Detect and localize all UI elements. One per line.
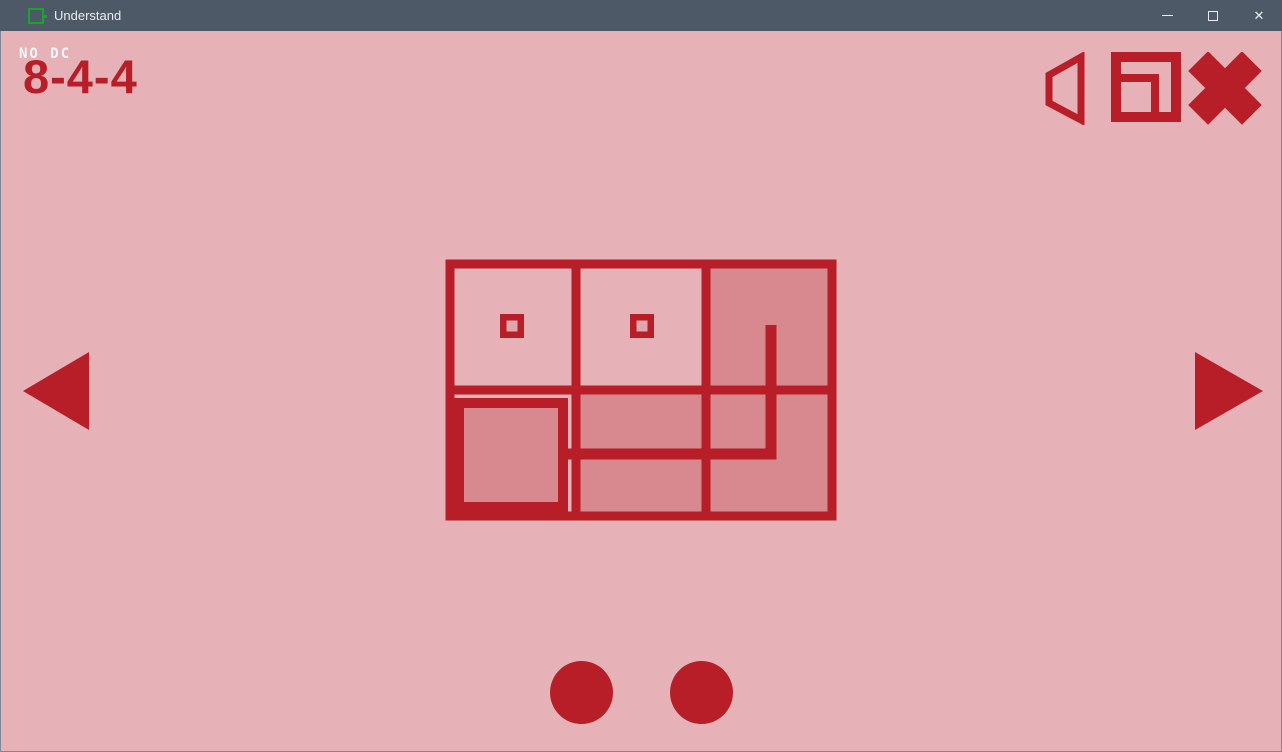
clear-button[interactable] xyxy=(1185,52,1265,126)
arrow-left-icon xyxy=(15,345,99,437)
sound-button[interactable] xyxy=(1041,52,1089,125)
dot-indicator xyxy=(670,661,733,724)
dot-indicator xyxy=(550,661,613,724)
app-icon xyxy=(28,8,44,24)
line-count-dots xyxy=(550,661,733,724)
close-icon: ✕ xyxy=(1254,9,1265,22)
prev-level-button[interactable] xyxy=(15,345,99,437)
x-cross-icon xyxy=(1185,52,1265,126)
game-area: NO DC 8-4-4 xyxy=(1,31,1281,751)
puzzle-board[interactable] xyxy=(441,255,841,525)
speaker-icon xyxy=(1041,52,1089,125)
titlebar[interactable]: Understand ✕ xyxy=(0,0,1282,31)
minimize-button[interactable] xyxy=(1144,0,1190,31)
window-title: Understand xyxy=(54,8,1144,23)
window-controls: ✕ xyxy=(1144,0,1282,31)
maximize-icon xyxy=(1208,11,1218,21)
level-title: 8-4-4 xyxy=(23,53,138,100)
next-level-button[interactable] xyxy=(1187,345,1271,437)
window-icon xyxy=(1107,50,1185,128)
app-window: Understand ✕ NO DC 8-4-4 xyxy=(0,0,1282,752)
arrow-right-icon xyxy=(1187,345,1271,437)
minimize-icon xyxy=(1162,15,1173,16)
maximize-button[interactable] xyxy=(1190,0,1236,31)
close-button[interactable]: ✕ xyxy=(1236,0,1282,31)
app-icon-tick xyxy=(42,15,47,18)
window-button[interactable] xyxy=(1107,50,1185,128)
